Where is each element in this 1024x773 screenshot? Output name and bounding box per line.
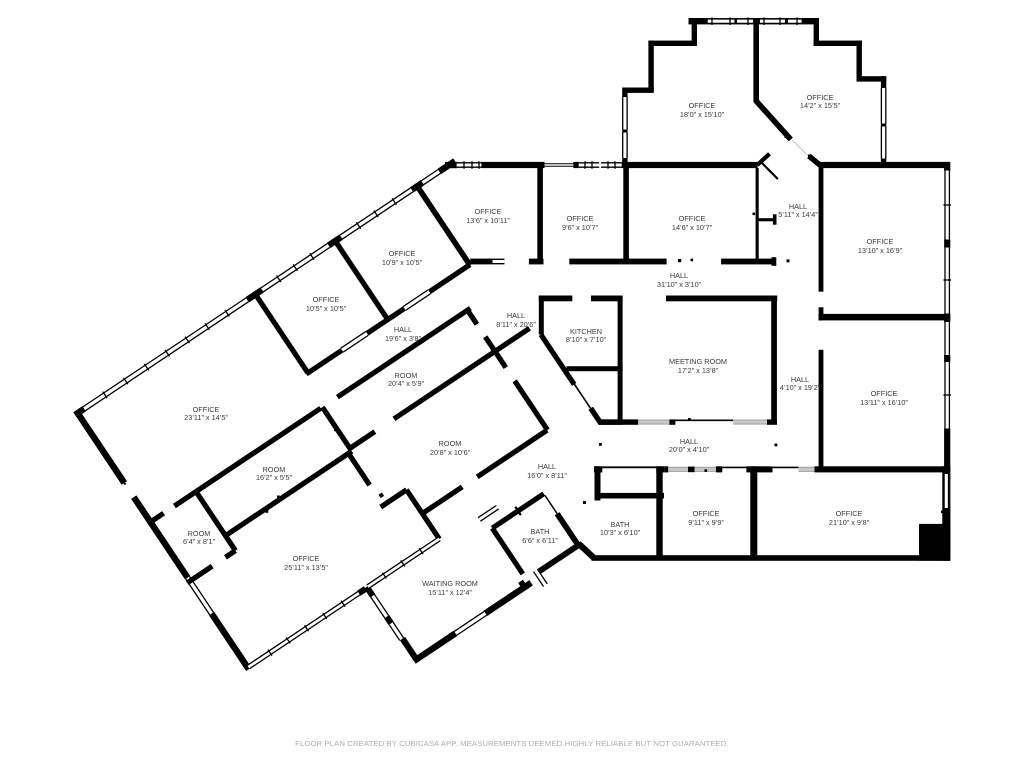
- svg-text:19’6” x 3’8”: 19’6” x 3’8”: [385, 334, 422, 343]
- svg-text:13’10” x 16’9”: 13’10” x 16’9”: [858, 246, 903, 255]
- svg-text:8’11” x 20’6”: 8’11” x 20’6”: [496, 320, 536, 329]
- svg-text:HALL: HALL: [394, 325, 412, 334]
- svg-text:4’10” x 19’2”: 4’10” x 19’2”: [780, 383, 821, 392]
- svg-text:OFFICE: OFFICE: [567, 214, 594, 223]
- svg-text:17’2” x 13’8”: 17’2” x 13’8”: [678, 366, 719, 375]
- svg-text:10’3” x 6’10”: 10’3” x 6’10”: [600, 528, 641, 537]
- svg-text:15’11” x 12’4”: 15’11” x 12’4”: [428, 588, 472, 597]
- svg-text:13’6” x 10’11”: 13’6” x 10’11”: [466, 216, 510, 225]
- svg-text:OFFICE: OFFICE: [867, 237, 894, 246]
- svg-text:14’6” x 10’7”: 14’6” x 10’7”: [672, 223, 713, 232]
- svg-text:20’4” x 5’9”: 20’4” x 5’9”: [388, 379, 425, 388]
- svg-text:14’2” x 15’5”: 14’2” x 15’5”: [800, 101, 841, 110]
- svg-text:21’10” x 9’8”: 21’10” x 9’8”: [829, 518, 870, 527]
- svg-text:16’0” x 8’11”: 16’0” x 8’11”: [527, 471, 567, 480]
- svg-text:BATH: BATH: [531, 527, 550, 536]
- svg-text:OFFICE: OFFICE: [693, 509, 720, 518]
- svg-text:OFFICE: OFFICE: [293, 554, 320, 563]
- svg-text:9’6” x 10’7”: 9’6” x 10’7”: [562, 223, 599, 232]
- svg-text:6’4” x 8’1”: 6’4” x 8’1”: [183, 537, 216, 546]
- svg-text:20’0” x 4’10”: 20’0” x 4’10”: [669, 445, 710, 454]
- svg-text:OFFICE: OFFICE: [836, 509, 863, 518]
- svg-text:25’11” x 13’5”: 25’11” x 13’5”: [284, 563, 328, 572]
- svg-text:6’6” x 6’11”: 6’6” x 6’11”: [522, 536, 558, 545]
- svg-text:10’5” x 10’5”: 10’5” x 10’5”: [306, 304, 347, 313]
- svg-text:FLOOR PLAN CREATED BY CUBICASA: FLOOR PLAN CREATED BY CUBICASA APP. MEAS…: [295, 739, 729, 748]
- svg-text:9’11” x 9’9”: 9’11” x 9’9”: [688, 518, 724, 527]
- svg-text:OFFICE: OFFICE: [389, 249, 416, 258]
- svg-text:20’8” x 10’6”: 20’8” x 10’6”: [430, 448, 471, 457]
- svg-text:WAITING ROOM: WAITING ROOM: [422, 579, 478, 588]
- svg-text:OFFICE: OFFICE: [689, 101, 716, 110]
- svg-text:5’11” x 14’4”: 5’11” x 14’4”: [778, 210, 818, 219]
- svg-text:HALL: HALL: [538, 462, 556, 471]
- svg-text:23’11” x 14’5”: 23’11” x 14’5”: [184, 413, 228, 422]
- svg-text:18’0” x 15’10”: 18’0” x 15’10”: [680, 110, 725, 119]
- svg-text:31’10” x 3’10”: 31’10” x 3’10”: [657, 280, 702, 289]
- svg-text:HALL: HALL: [670, 271, 688, 280]
- svg-text:16’2” x 5’5”: 16’2” x 5’5”: [256, 473, 293, 482]
- svg-text:10’9” x 10’5”: 10’9” x 10’5”: [382, 258, 423, 267]
- svg-text:HALL: HALL: [507, 311, 525, 320]
- svg-text:MEETING ROOM: MEETING ROOM: [669, 357, 727, 366]
- svg-text:OFFICE: OFFICE: [679, 214, 706, 223]
- svg-text:OFFICE: OFFICE: [475, 207, 502, 216]
- svg-text:ROOM: ROOM: [439, 439, 462, 448]
- svg-text:13’11” x 16’10”: 13’11” x 16’10”: [860, 398, 908, 407]
- svg-text:OFFICE: OFFICE: [313, 295, 340, 304]
- svg-text:OFFICE: OFFICE: [871, 389, 898, 398]
- svg-text:8’10” x 7’10”: 8’10” x 7’10”: [566, 335, 607, 344]
